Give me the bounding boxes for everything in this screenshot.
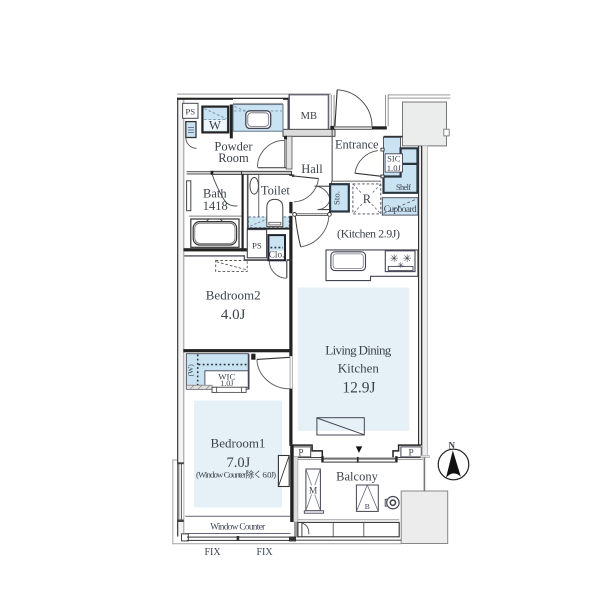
svg-text:12.9J: 12.9J (342, 379, 375, 396)
svg-text:Kitchen: Kitchen (338, 361, 380, 376)
svg-text:✳: ✳ (397, 261, 404, 270)
svg-text:Bedroom2: Bedroom2 (206, 288, 261, 303)
svg-text:1.0J: 1.0J (220, 379, 233, 388)
svg-text:Bedroom1: Bedroom1 (211, 436, 266, 451)
svg-text:(Kitchen 2.9J): (Kitchen 2.9J) (337, 226, 400, 240)
svg-text:1418: 1418 (203, 199, 228, 213)
svg-text:W: W (209, 119, 222, 133)
svg-text:PS: PS (252, 240, 262, 250)
svg-text:B: B (365, 502, 370, 511)
svg-text:1.0J: 1.0J (387, 163, 402, 173)
svg-text:Clo.: Clo. (269, 251, 285, 261)
svg-text:Hall: Hall (301, 162, 323, 176)
svg-text:P: P (298, 448, 303, 458)
svg-text:(W): (W) (186, 364, 195, 377)
svg-text:(Window Counter除く 6.0J): (Window Counter除く 6.0J) (196, 468, 276, 479)
svg-text:PS: PS (185, 107, 195, 117)
svg-text:M: M (309, 486, 317, 496)
svg-text:Entrance: Entrance (335, 138, 379, 152)
svg-text:Room: Room (218, 151, 249, 165)
svg-text:MB: MB (301, 111, 317, 122)
svg-text:Window Counter: Window Counter (210, 522, 265, 532)
svg-text:Sto.: Sto. (332, 191, 342, 205)
svg-text:Toilet: Toilet (261, 183, 291, 197)
svg-text:R: R (363, 192, 372, 206)
svg-text:4.0J: 4.0J (221, 307, 246, 323)
svg-text:Cupboard: Cupboard (384, 205, 417, 215)
svg-text:P: P (409, 448, 414, 458)
svg-text:Living Dining: Living Dining (325, 342, 392, 357)
svg-text:Shelf: Shelf (396, 183, 411, 192)
svg-text:Balcony: Balcony (336, 470, 378, 484)
svg-text:FIX: FIX (256, 547, 273, 558)
svg-text:✳: ✳ (403, 253, 412, 265)
svg-text:FIX: FIX (204, 547, 221, 558)
